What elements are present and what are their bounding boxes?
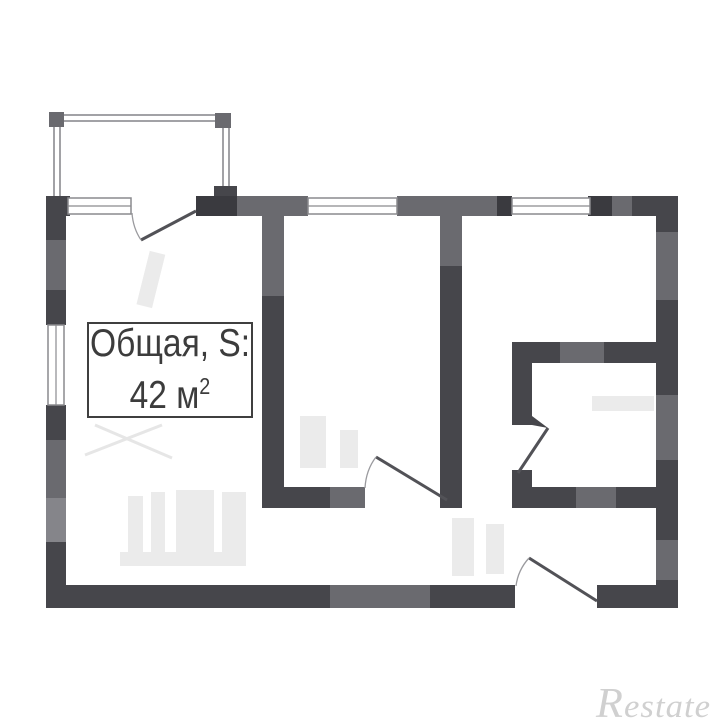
outer-wall-bottom: [46, 585, 678, 608]
window-top-left: [68, 198, 131, 214]
door-entrance: [516, 558, 597, 601]
balcony-outline: [53, 114, 229, 205]
interior-wall-right-room-divider: [440, 216, 462, 508]
window-top-middle: [308, 198, 397, 214]
outer-wall-right: [656, 196, 678, 608]
balcony-corner-left: [49, 112, 64, 127]
door-middle-room: [365, 457, 447, 500]
interior-wall-left-room-divider: [262, 216, 284, 508]
interior-wall-middle-room-bottom: [262, 487, 365, 508]
floorplan-page: Общая, S: 42 м2 Restate: [0, 0, 725, 725]
total-area-value: 42 м2: [130, 365, 211, 417]
total-area-label-box: Общая, S: 42 м2: [87, 322, 253, 418]
window-top-right: [512, 198, 590, 214]
window-left-wall: [48, 325, 64, 405]
square-superscript: 2: [199, 373, 210, 399]
total-area-title: Общая, S:: [90, 323, 250, 365]
brand-watermark: Restate: [596, 680, 725, 728]
balcony-corner-right: [215, 113, 231, 128]
door-balcony: [132, 211, 196, 240]
